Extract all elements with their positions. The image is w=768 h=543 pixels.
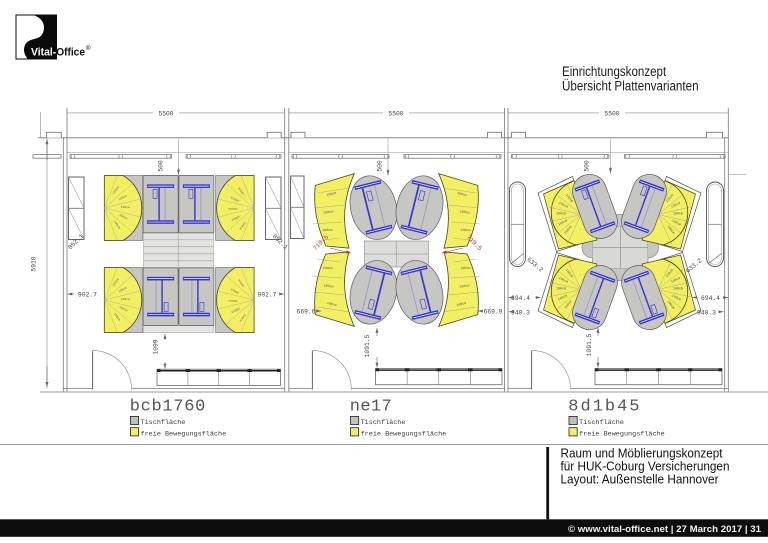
svg-text:500: 500: [377, 160, 384, 172]
svg-text:100cm: 100cm: [121, 298, 130, 301]
svg-text:100cm: 100cm: [460, 266, 470, 271]
svg-text:Übersicht Plattenvarianten: Übersicht Plattenvarianten: [562, 79, 699, 94]
svg-text:freie Bewegungsfläche: freie Bewegungsfläche: [579, 431, 665, 439]
svg-text:Layout: Außenstelle Hannover: Layout: Außenstelle Hannover: [561, 472, 720, 487]
svg-text:1099: 1099: [153, 339, 160, 354]
svg-text:Tischfläche: Tischfläche: [141, 419, 186, 427]
svg-text:100cm: 100cm: [556, 287, 566, 291]
svg-text:1091.5: 1091.5: [364, 334, 371, 357]
svg-text:1091.5: 1091.5: [586, 333, 593, 356]
svg-text:freie Bewegungsfläche: freie Bewegungsfläche: [141, 431, 227, 439]
svg-text:669.6: 669.6: [297, 309, 316, 316]
svg-text:100cm: 100cm: [461, 228, 471, 233]
svg-text:902.7: 902.7: [78, 292, 97, 299]
svg-text:940.3: 940.3: [511, 309, 530, 316]
svg-text:100cm: 100cm: [673, 212, 683, 216]
svg-text:100cm: 100cm: [228, 207, 237, 210]
svg-text:500: 500: [584, 160, 591, 172]
svg-text:100cm: 100cm: [556, 212, 566, 216]
svg-text:694.4: 694.4: [511, 295, 530, 302]
svg-text:Tischfläche: Tischfläche: [361, 419, 406, 427]
svg-text:ne17: ne17: [350, 398, 392, 417]
svg-text:100cm: 100cm: [673, 287, 683, 291]
svg-text:Office: Office: [56, 46, 85, 58]
svg-text:100cm: 100cm: [121, 206, 130, 209]
svg-text:100cm: 100cm: [322, 228, 332, 233]
svg-text:902.7: 902.7: [258, 292, 277, 299]
svg-text:Vital-: Vital-: [31, 46, 57, 58]
svg-text:®: ®: [86, 44, 91, 52]
svg-text:8d1b45: 8d1b45: [568, 398, 641, 417]
svg-text:© www.vital-office.net | 2: © www.vital-office.net | 27 March 2017 |…: [568, 524, 761, 534]
svg-text:Tischfläche: Tischfläche: [579, 419, 624, 427]
svg-text:500: 500: [158, 160, 165, 172]
svg-text:5500: 5500: [604, 110, 619, 117]
svg-text:freie Bewegungsfläche: freie Bewegungsfläche: [361, 431, 447, 439]
svg-text:5500: 5500: [388, 110, 403, 117]
svg-text:bcb1760: bcb1760: [130, 398, 206, 417]
svg-text:5500: 5500: [158, 110, 173, 117]
svg-text:Einrichtungskonzept: Einrichtungskonzept: [562, 64, 666, 79]
svg-text:5910: 5910: [31, 256, 38, 271]
svg-text:694.4: 694.4: [701, 295, 720, 302]
svg-text:100cm: 100cm: [228, 299, 237, 302]
svg-text:940.3: 940.3: [697, 309, 716, 316]
svg-text:669.9: 669.9: [484, 309, 503, 316]
svg-text:100cm: 100cm: [323, 266, 333, 271]
